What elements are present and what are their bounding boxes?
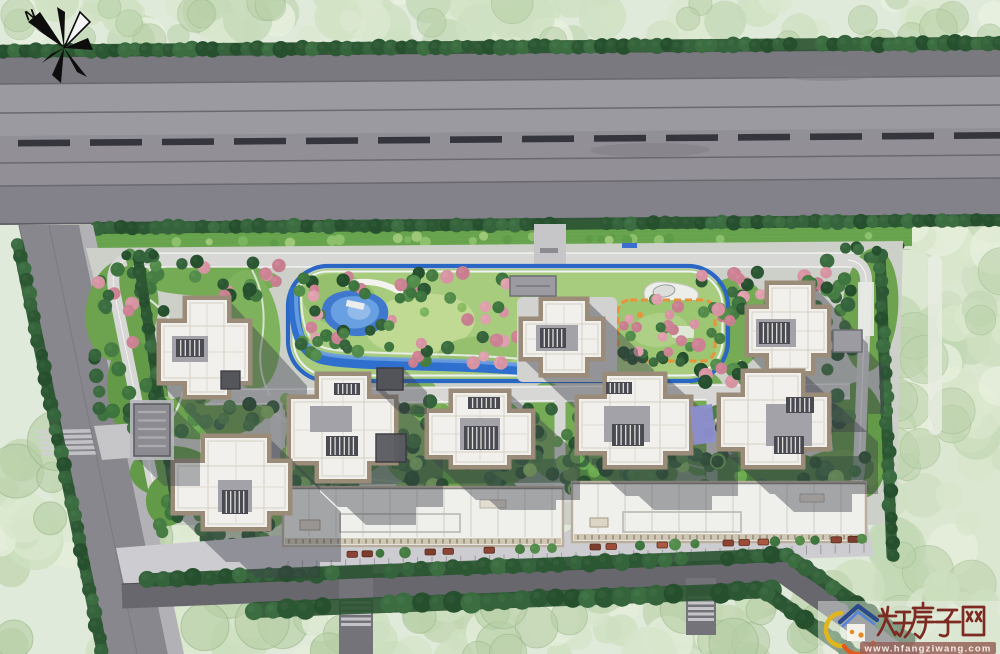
- svg-text:www.hfangziwang.com: www.hfangziwang.com: [864, 644, 992, 654]
